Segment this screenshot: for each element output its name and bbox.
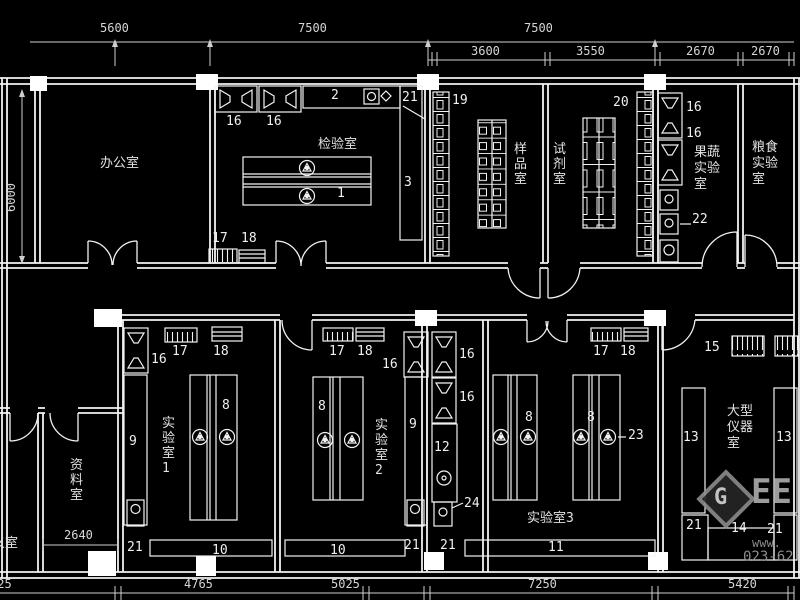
callout-label: 16: [151, 352, 167, 367]
room-label: 实验室1: [162, 416, 179, 476]
callout-label: 12: [434, 440, 450, 455]
callout-label: 17: [329, 344, 345, 359]
room-label: 粮食实验室: [752, 140, 783, 188]
callout-label: 10: [212, 543, 228, 558]
callout-label: 16: [686, 126, 702, 141]
callout-label: 9: [129, 434, 137, 449]
room-label: 检验室: [318, 133, 357, 152]
callout-label: 16: [382, 357, 398, 372]
callout-label: 8: [222, 398, 230, 413]
dimension-label: 7500: [298, 21, 327, 35]
watermark-logo-letter: G: [714, 485, 727, 510]
watermark-phone: 023-62: [743, 549, 794, 565]
callout-label: 21: [127, 540, 143, 555]
callout-label: 13: [776, 430, 792, 445]
room-label: 试剂室: [553, 142, 570, 187]
room-label: 大型仪器室: [727, 404, 758, 452]
callout-label: 13: [683, 430, 699, 445]
callout-label: 9: [409, 417, 417, 432]
room-label: 实验室3: [527, 507, 574, 526]
callout-label: 17: [172, 344, 188, 359]
callout-label: 21: [767, 522, 783, 537]
callout-label: 17: [212, 231, 228, 246]
callout-label: 1: [337, 186, 345, 201]
dimension-label: 5420: [728, 577, 757, 591]
dimension-label: 6000: [4, 183, 18, 212]
callout-label: 21: [402, 90, 418, 105]
callout-label: 21: [440, 538, 456, 553]
callout-label: 8: [525, 410, 533, 425]
callout-label: 16: [459, 347, 475, 362]
callout-label: 23: [628, 428, 644, 443]
callout-label: 24: [464, 496, 480, 511]
callout-label: 18: [213, 344, 229, 359]
callout-label: 17: [593, 344, 609, 359]
callout-label: 15: [704, 340, 720, 355]
dimension-label: 7250: [528, 577, 557, 591]
callout-label: 19: [452, 93, 468, 108]
callout-label: 11: [548, 540, 564, 555]
watermark-url: www.: [752, 536, 781, 550]
dimension-label: 3600: [471, 44, 500, 58]
room-label: 实验室2: [375, 418, 392, 478]
dimension-label: 4765: [184, 577, 213, 591]
dimension-label: 725: [0, 577, 12, 591]
callout-label: 18: [357, 344, 373, 359]
callout-label: 8: [318, 399, 326, 414]
callout-label: 16: [686, 100, 702, 115]
callout-label: 18: [620, 344, 636, 359]
cad-canvas: 5600750075003600355026702670600026407254…: [0, 0, 800, 600]
dimension-label: 5600: [100, 21, 129, 35]
callout-label: 8: [587, 410, 595, 425]
dimension-label: 3550: [576, 44, 605, 58]
label-layer: 5600750075003600355026702670600026407254…: [0, 0, 800, 600]
room-label: 资料室: [70, 458, 87, 503]
callout-label: 14: [731, 521, 747, 536]
dimension-label: 5025: [331, 577, 360, 591]
room-label: 果蔬实验室: [694, 145, 725, 193]
callout-label: 16: [266, 114, 282, 129]
callout-label: 21: [686, 518, 702, 533]
dimension-label: 2640: [64, 528, 93, 542]
callout-label: 3: [404, 175, 412, 190]
room-label: 办公室: [100, 152, 139, 171]
callout-label: 10: [330, 543, 346, 558]
callout-label: 16: [459, 390, 475, 405]
room-label: 样品室: [514, 142, 531, 187]
callout-label: 22: [692, 212, 708, 227]
dimension-label: 2670: [686, 44, 715, 58]
callout-label: 2: [331, 88, 339, 103]
callout-label: 21: [404, 538, 420, 553]
callout-label: 16: [226, 114, 242, 129]
callout-label: 18: [241, 231, 257, 246]
dimension-label: 2670: [751, 44, 780, 58]
room-label: 义室: [0, 532, 18, 551]
watermark-brand: EE: [751, 472, 792, 512]
dimension-label: 7500: [524, 21, 553, 35]
callout-label: 20: [613, 95, 629, 110]
